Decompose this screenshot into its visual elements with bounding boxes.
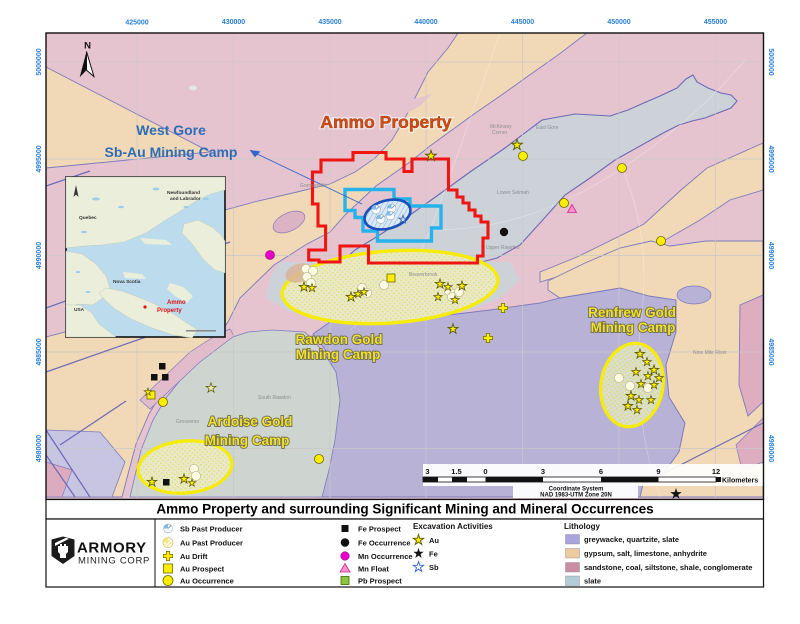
svg-text:4985000: 4985000 [767, 338, 774, 365]
svg-text:5000000: 5000000 [36, 48, 43, 75]
svg-text:Ammo Property and surrounding: Ammo Property and surrounding Significan… [156, 502, 653, 517]
svg-text:Rawdon Gold: Rawdon Gold [296, 332, 383, 347]
svg-text:4980000: 4980000 [36, 435, 43, 462]
svg-text:440000: 440000 [414, 19, 437, 26]
svg-text:4985000: 4985000 [36, 338, 43, 365]
svg-text:0: 0 [483, 467, 487, 476]
svg-text:Fe Prospect: Fe Prospect [358, 525, 401, 534]
svg-text:4995000: 4995000 [36, 145, 43, 172]
svg-text:Ammo Property: Ammo Property [320, 112, 452, 132]
svg-text:425000: 425000 [125, 20, 148, 27]
svg-text:435000: 435000 [318, 19, 341, 26]
svg-text:Upper Rawdon: Upper Rawdon [486, 245, 520, 251]
svg-text:4990000: 4990000 [36, 242, 43, 269]
svg-text:Sb Past Producer: Sb Past Producer [180, 525, 243, 534]
svg-text:and Labrador: and Labrador [170, 196, 201, 202]
svg-text:gypsum, salt, limestone, anhyd: gypsum, salt, limestone, anhydrite [584, 549, 707, 558]
svg-text:Au: Au [429, 536, 439, 545]
svg-text:Corner: Corner [492, 130, 508, 136]
svg-text:greywacke, quartzite, slate: greywacke, quartzite, slate [584, 535, 679, 544]
svg-text:1.5: 1.5 [451, 467, 461, 476]
svg-text:South Rawdon: South Rawdon [258, 395, 291, 401]
svg-text:East Gore: East Gore [536, 125, 559, 131]
svg-text:445000: 445000 [511, 19, 534, 26]
svg-text:455000: 455000 [704, 19, 727, 26]
svg-text:slate: slate [584, 577, 601, 586]
svg-text:3: 3 [425, 467, 429, 476]
svg-text:USA: USA [74, 307, 85, 313]
svg-text:Lithology: Lithology [564, 522, 601, 531]
svg-text:12: 12 [712, 467, 720, 476]
svg-text:Fe Occurrence: Fe Occurrence [358, 539, 411, 548]
svg-text:Ammo: Ammo [167, 300, 186, 306]
svg-text:Ardoise Gold: Ardoise Gold [208, 414, 293, 429]
svg-text:N: N [84, 41, 91, 52]
svg-text:430000: 430000 [222, 19, 245, 26]
svg-text:NAD 1983-UTM Zone 20N: NAD 1983-UTM Zone 20N [540, 493, 612, 499]
svg-text:MINING CORP: MINING CORP [78, 556, 150, 567]
svg-text:Sb: Sb [429, 563, 439, 572]
svg-text:West Gore: West Gore [136, 122, 206, 138]
svg-text:sandstone, coal, siltstone, sh: sandstone, coal, siltstone, shale, congl… [584, 563, 752, 572]
svg-text:Lower Selmah: Lower Selmah [497, 190, 529, 196]
svg-text:Mn Float: Mn Float [358, 565, 389, 574]
svg-text:4990000: 4990000 [767, 242, 774, 269]
svg-text:Newfoundland: Newfoundland [167, 190, 200, 196]
svg-text:Pb Prospect: Pb Prospect [358, 577, 402, 586]
svg-text:Beaverbrook: Beaverbrook [409, 272, 438, 278]
svg-text:450000: 450000 [607, 19, 630, 26]
svg-text:3: 3 [541, 467, 545, 476]
svg-text:4980000: 4980000 [767, 435, 774, 462]
svg-text:Nova Scotia: Nova Scotia [113, 279, 141, 285]
svg-text:Nine Mile River: Nine Mile River [693, 350, 727, 356]
svg-text:ARMORY: ARMORY [77, 540, 147, 557]
svg-text:Fe: Fe [429, 550, 438, 559]
svg-text:Au Prospect: Au Prospect [180, 565, 225, 574]
svg-text:Mining Camp: Mining Camp [296, 347, 381, 362]
svg-text:5000000: 5000000 [767, 48, 774, 75]
svg-text:Property: Property [157, 308, 182, 314]
svg-text:4995000: 4995000 [767, 145, 774, 172]
svg-text:Mining Camp: Mining Camp [591, 320, 676, 335]
svg-text:Renfrew Gold: Renfrew Gold [588, 305, 676, 320]
svg-text:Au Drift: Au Drift [180, 552, 208, 561]
svg-text:6: 6 [599, 467, 603, 476]
svg-text:Au Past Producer: Au Past Producer [180, 539, 243, 548]
svg-text:Mn Occurrence: Mn Occurrence [358, 552, 413, 561]
svg-text:Excavation Activities: Excavation Activities [413, 522, 493, 531]
svg-text:Quebec: Quebec [79, 215, 97, 221]
svg-text:Grosvenor: Grosvenor [176, 419, 200, 425]
svg-text:Sb-Au Mining Camp: Sb-Au Mining Camp [105, 144, 238, 160]
svg-text:Kilometers: Kilometers [722, 478, 758, 485]
svg-text:Gormanville: Gormanville [300, 183, 327, 189]
svg-text:Mining Camp: Mining Camp [205, 433, 290, 448]
svg-text:Au Occurrence: Au Occurrence [180, 577, 234, 586]
svg-text:9: 9 [656, 467, 660, 476]
